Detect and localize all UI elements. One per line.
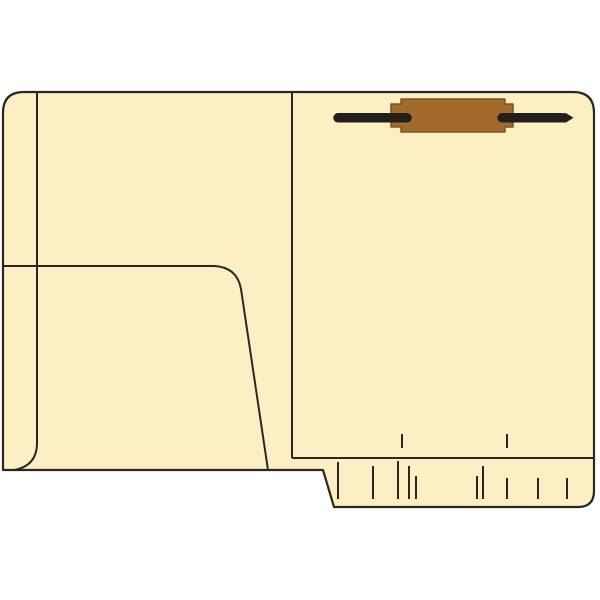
product-image-folder xyxy=(0,0,600,600)
folder-body xyxy=(3,92,594,507)
folder-illustration xyxy=(0,0,600,600)
